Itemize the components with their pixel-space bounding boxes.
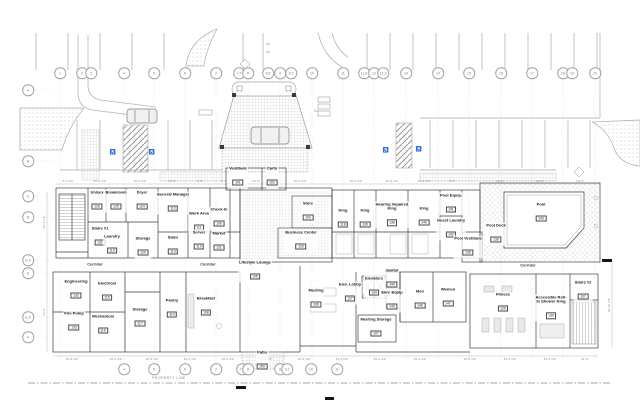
dimension-text: 10'-4 1/2" xyxy=(133,179,146,183)
room-number: 135 xyxy=(463,249,474,255)
room-name: King xyxy=(419,206,430,210)
dimension-text: 10'-4 1/2" xyxy=(221,357,234,361)
room-label: Pool Deck136 xyxy=(485,223,506,246)
room-name: Dryer xyxy=(137,190,148,194)
room-number: 133 xyxy=(69,324,80,330)
grid-bubble-top: 17 xyxy=(526,67,538,79)
room-label: Laundry119 xyxy=(103,234,121,257)
room-name: Business Center xyxy=(285,230,317,234)
room-name: Women xyxy=(441,287,455,291)
dimension-text: 12'-8" xyxy=(168,179,176,183)
grid-bubble-top: 6 xyxy=(179,67,191,79)
room-number: 112 xyxy=(168,205,178,211)
room-number: 146 xyxy=(415,302,426,308)
dimension-text: 10'-4 1/2" xyxy=(293,179,306,183)
room-name: Stairs #2 xyxy=(575,280,592,284)
traffic-arrow-icon: ⇦ xyxy=(266,50,271,56)
dimension-text: 10'-0" xyxy=(576,179,584,183)
room-name: Elevators xyxy=(365,276,383,280)
room-label: Pool Equip.141 xyxy=(439,193,463,216)
grid-bubble-top: 12.3 xyxy=(377,67,389,79)
grid-bubble-top: 11 xyxy=(337,67,349,79)
room-number: 124 xyxy=(137,203,148,209)
room-name: Elev. Equip xyxy=(381,290,402,294)
room-name: General Manager xyxy=(157,192,189,196)
room-number: 139 xyxy=(360,221,371,227)
room-label: Pool Vestibule135 xyxy=(453,236,482,259)
room-name: Unisex xyxy=(90,190,103,194)
room-name: Accessible Roll-In Shower King xyxy=(534,295,568,304)
room-number: 116 xyxy=(98,327,108,333)
grid-bubble-bottom: 7 xyxy=(210,363,222,375)
room-name: Pool Deck xyxy=(486,223,505,227)
dimension-text: 6'-0" xyxy=(197,179,203,183)
room-label: Men146 xyxy=(414,289,427,312)
plan-labels: Vestibule101Carts102Store104Business Cen… xyxy=(0,0,640,405)
dimension-text: 10'-4 1/2" xyxy=(373,357,386,361)
room-label: Carts102 xyxy=(266,166,279,189)
room-name: King xyxy=(338,208,348,212)
dimension-text: 10'-4 1/2" xyxy=(93,179,106,183)
room-label: Accessible Roll-In Shower King130 xyxy=(533,294,569,321)
room-name: Men xyxy=(415,289,426,293)
room-number: 103 xyxy=(296,243,307,249)
grid-bubble-top: 1 xyxy=(54,67,66,79)
room-label: Check-In109 xyxy=(210,207,229,230)
room-number: 138 xyxy=(387,220,398,226)
room-number: 127 xyxy=(345,295,356,301)
room-label: Server110 xyxy=(192,230,206,253)
room-label: Breakfast108 xyxy=(196,296,216,319)
dimension-text: 19'-4 1/2" xyxy=(413,357,426,361)
room-label: Sales113 xyxy=(167,235,179,258)
accessible-parking-icon: ♿ xyxy=(383,149,389,154)
dimension-text: 11'-0" xyxy=(581,357,589,361)
dimension-text: 16'-8" xyxy=(42,308,46,316)
room-label: Hearing Impaired King138 xyxy=(374,201,410,228)
room-label: Engineering132 xyxy=(63,279,88,302)
room-number: 143 xyxy=(536,215,547,221)
room-name: Stairs #1 xyxy=(92,226,109,230)
room-number: 140 xyxy=(419,219,430,225)
grid-bubble-left: A xyxy=(22,84,34,96)
room-name: Store xyxy=(303,201,314,205)
room-number: 121 xyxy=(214,244,225,250)
room-label: Mechanical116 xyxy=(91,314,115,337)
grid-bubble-top: 3 xyxy=(85,67,97,79)
accessible-parking-icon: ♿ xyxy=(110,151,116,156)
room-name: Engineering xyxy=(64,279,87,283)
room-label: King118 xyxy=(337,208,349,231)
room-name: Pool xyxy=(536,202,547,206)
room-number: 120 xyxy=(138,249,149,255)
dimension-text: 29'-10 1/2" xyxy=(607,298,611,313)
grid-bubble-left: C xyxy=(22,190,34,202)
grid-bubble-left: E.6 xyxy=(22,311,34,323)
room-name: Meeting Storage xyxy=(360,317,391,321)
grid-bubble-top: 20 xyxy=(589,67,601,79)
room-number: 126 xyxy=(92,203,103,209)
room-label: Vestibule101 xyxy=(228,166,248,189)
dimension-text: 12'-0" xyxy=(496,179,504,183)
room-label: Storage117 xyxy=(132,307,149,330)
room-number: 106 xyxy=(311,301,322,307)
corridor-label: Corridor xyxy=(519,263,537,268)
dimension-text: 19'-4 1/2" xyxy=(65,357,78,361)
room-name: Storage xyxy=(133,307,148,311)
room-label: Patio150 xyxy=(256,350,269,373)
room-label: Fitness129 xyxy=(495,292,511,315)
dimension-text: 10'-4 1/2" xyxy=(109,357,122,361)
room-number: 144 xyxy=(387,281,398,287)
grid-bubble-top: 5 xyxy=(148,67,160,79)
room-number: 102 xyxy=(267,179,278,185)
room-number: 150 xyxy=(257,363,268,369)
room-label: Electrical115 xyxy=(97,281,117,304)
grid-bubble-top: 8 xyxy=(242,67,254,79)
room-name: Check-In xyxy=(211,207,228,211)
room-label: Unisex126 xyxy=(89,190,104,213)
room-label: Elev. Equip145 xyxy=(380,290,403,313)
room-name: Electrical xyxy=(98,281,116,285)
dimension-text: 10'-4 1/2" xyxy=(503,357,516,361)
traffic-arrow-icon: ⇨ xyxy=(266,42,271,48)
room-label: Market121 xyxy=(212,231,227,254)
room-label: Stairs #2137 xyxy=(574,280,593,303)
room-number: 107 xyxy=(371,330,382,336)
grid-bubble-top: 15 xyxy=(463,67,475,79)
room-label: Janitor144 xyxy=(384,268,399,291)
traffic-arrow-icon: ⇦ xyxy=(314,109,319,115)
room-number: 141 xyxy=(446,206,457,212)
corridor-label: Corridor xyxy=(199,262,217,267)
room-name: Elev. Lobby xyxy=(339,282,361,286)
room-number: 109 xyxy=(214,220,225,226)
grid-bubble-left: D xyxy=(22,211,34,223)
room-label: Lifestyle Lounge105 xyxy=(238,260,272,283)
dimension-text: 10'-4 1/2" xyxy=(417,179,430,183)
grid-bubble-top: 7 xyxy=(210,67,222,79)
room-number: 114 xyxy=(167,311,177,317)
grid-bubble-left: E xyxy=(22,267,34,279)
grid-bubble-top: 14 xyxy=(432,67,444,79)
room-name: Guest Laundry xyxy=(437,218,465,222)
grid-bubble-bottom: 5 xyxy=(148,363,160,375)
room-name: Pool Equip. xyxy=(440,193,462,197)
grid-bubble-bottom: 11 xyxy=(331,363,343,375)
grid-bubble-top: 9.2 xyxy=(285,67,297,79)
room-label: King139 xyxy=(359,208,372,231)
room-number: 118 xyxy=(338,221,348,227)
dimension-text: 30'-0" xyxy=(536,179,544,183)
room-name: Janitor xyxy=(385,268,398,272)
room-number: 101 xyxy=(233,179,244,185)
dimension-text: 10'-4 1/2" xyxy=(385,179,398,183)
room-name: Meeting xyxy=(308,288,323,292)
room-name: Work Area xyxy=(189,211,209,215)
property-line-label: PROPERTY LINE xyxy=(152,376,186,380)
room-number: 130 xyxy=(546,313,557,319)
grid-bubble-top: 19 xyxy=(566,67,578,79)
room-name: Fire Pump xyxy=(64,311,84,315)
room-label: Store104 xyxy=(302,201,315,224)
room-name: Patio xyxy=(257,350,268,354)
room-name: Laundry xyxy=(104,234,120,238)
room-label: Business Center103 xyxy=(284,230,318,253)
room-name: Pool Vestibule xyxy=(454,236,481,240)
grid-bubble-top: 13 xyxy=(400,67,412,79)
room-label: Storage120 xyxy=(135,236,152,259)
room-number: 125 xyxy=(111,203,122,209)
dimension-text: 8'-8" xyxy=(449,179,455,183)
room-number: 137 xyxy=(578,293,589,299)
grid-bubble-top: 4 xyxy=(118,67,130,79)
room-name: Sales xyxy=(168,235,178,239)
room-name: Pantry xyxy=(166,298,178,302)
room-number: 105 xyxy=(250,273,261,279)
room-label: King140 xyxy=(418,206,431,229)
grid-bubble-bottom: 10 xyxy=(305,363,317,375)
room-name: Lifestyle Lounge xyxy=(239,260,271,264)
accessible-parking-icon: ♿ xyxy=(149,151,155,156)
room-number: 145 xyxy=(387,303,398,309)
room-number: 119 xyxy=(107,247,117,253)
room-name: Vestibule xyxy=(229,166,247,170)
dimension-text: 10'-4 1/2" xyxy=(335,357,348,361)
room-name: Mechanical xyxy=(92,314,114,318)
dimension-text: 16'-0" xyxy=(252,179,260,183)
room-number: 113 xyxy=(168,248,178,254)
room-name: Carts xyxy=(267,166,278,170)
room-label: Meeting Storage107 xyxy=(359,317,392,340)
grid-bubble-bottom: 6 xyxy=(179,363,191,375)
room-number: 104 xyxy=(303,214,314,220)
dimension-text: 10'-4 1/2" xyxy=(543,357,556,361)
dimension-text: 8'-0" xyxy=(221,179,227,183)
grid-bubble-left: B xyxy=(22,155,34,167)
room-label: Elev. Lobby127 xyxy=(338,282,362,305)
room-name: Storage xyxy=(136,236,151,240)
room-number: 147 xyxy=(443,300,454,306)
room-name: King xyxy=(360,208,371,212)
grid-bubble-top: 16 xyxy=(495,67,507,79)
room-label: Breakroom125 xyxy=(104,190,127,213)
room-number: 136 xyxy=(491,236,502,242)
room-label: Meeting106 xyxy=(307,288,324,311)
dimension-text: 10'-4 1/2" xyxy=(297,357,310,361)
grid-bubble-top: 9 xyxy=(274,67,286,79)
dimension-text: 10'-4 1/2" xyxy=(349,179,362,183)
room-number: 115 xyxy=(102,294,112,300)
grid-bubble-bottom: 4 xyxy=(118,363,130,375)
dimension-text: 30'-4 1/2" xyxy=(42,215,46,228)
room-name: Breakfast xyxy=(197,296,215,300)
room-number: 134 xyxy=(369,289,380,295)
grid-bubble-left: D.4 xyxy=(22,254,34,266)
grid-bubble-left: F xyxy=(22,331,34,343)
room-name: Market xyxy=(213,231,226,235)
grid-bubble-top: 8.5 xyxy=(262,67,274,79)
room-name: Server xyxy=(193,230,205,234)
room-name: Breakroom xyxy=(105,190,126,194)
dimension-text: 10'-4 1/2" xyxy=(463,357,476,361)
corridor-label: Corridor xyxy=(86,262,104,267)
room-name: Fitness xyxy=(496,292,510,296)
room-number: 110 xyxy=(194,243,204,249)
room-name: Hearing Impaired King xyxy=(375,202,409,211)
dimension-text: 10'-4 1/2" xyxy=(183,357,196,361)
room-label: Women147 xyxy=(440,287,456,310)
room-number: 132 xyxy=(71,292,82,298)
room-label: Dryer124 xyxy=(136,190,149,213)
dimension-text: 10'-4 1/2" xyxy=(145,357,158,361)
grid-bubble-top: 10 xyxy=(306,67,318,79)
room-label: Fire Pump133 xyxy=(63,311,85,334)
room-label: General Manager112 xyxy=(156,192,190,215)
room-number: 129 xyxy=(498,305,509,311)
floor-plan: Vestibule101Carts102Store104Business Cen… xyxy=(0,0,640,405)
room-label: Pantry114 xyxy=(165,298,179,321)
room-label: Pool143 xyxy=(535,202,548,225)
grid-bubble-bottom: 9.2 xyxy=(281,363,293,375)
room-number: 117 xyxy=(135,320,145,326)
accessible-parking-icon: ♿ xyxy=(416,148,422,153)
dimension-text: 8'-4 1/4" xyxy=(62,179,73,183)
grid-bubble-bottom: 8 xyxy=(242,363,254,375)
room-number: 108 xyxy=(201,309,212,315)
